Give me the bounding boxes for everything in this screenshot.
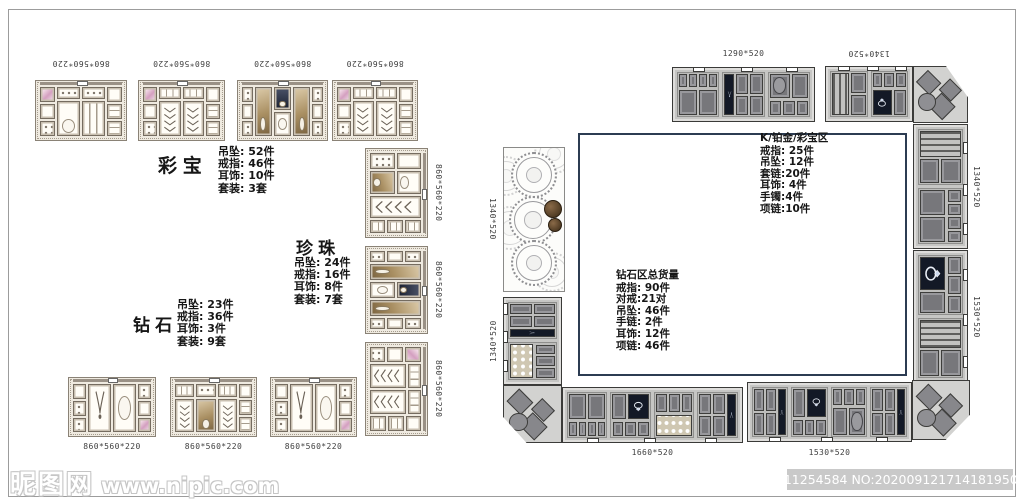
dimension-label: 860*560*220 <box>332 58 418 69</box>
display-cabinet-elevation <box>365 246 428 334</box>
plan-cabinet-run <box>825 66 913 122</box>
dimension-label: 860*560*220 <box>432 246 444 334</box>
display-cabinet-elevation <box>270 377 357 437</box>
dimension-label: 860*560*220 <box>35 58 127 69</box>
zone-inventory-k-area: K/铂金/彩宝区 戒指: 25件 吊坠: 12件 套链:20件 耳饰: 4件 手… <box>760 133 828 215</box>
dimension-label: 1530*520 <box>970 250 982 383</box>
inventory-list-zuanshi: 吊坠: 23件 戒指: 36件 耳饰: 3件 套装: 9套 <box>177 299 234 348</box>
jewel-decoration <box>548 218 562 232</box>
watermark-url: www.nipic.com <box>101 474 279 498</box>
plan-cabinet-run <box>562 387 743 443</box>
inventory-list-caibao: 吊坠: 52件 戒指: 46件 耳饰: 10件 套装: 3套 <box>218 146 275 195</box>
display-cabinet-elevation <box>68 377 156 437</box>
display-cabinet-elevation <box>35 80 127 141</box>
dimension-label: 1340*520 <box>488 297 500 385</box>
dimension-label: 860*560*220 <box>432 148 444 238</box>
image-id-stamp: ID:11254584 NO:20200912171418195000 <box>787 469 1013 490</box>
dimension-label: 1660*520 <box>562 447 743 458</box>
dimension-label: 1290*520 <box>672 48 815 59</box>
nipic-watermark: 昵图网 www.nipic.com <box>10 464 279 501</box>
zone-title: 钻石区总货量 <box>616 270 679 282</box>
inventory-line: 套装: 9套 <box>177 336 234 348</box>
dimension-label: 1340*520 <box>825 48 913 59</box>
inventory-line: 手镯:4件 <box>760 192 828 204</box>
inventory-line: 耳饰: 12件 <box>616 329 679 341</box>
dimension-label: 860*560*220 <box>270 441 357 452</box>
inventory-line: 套装: 3套 <box>218 183 275 195</box>
inventory-line: 项链:10件 <box>760 204 828 216</box>
inventory-line: 项链: 46件 <box>616 341 679 353</box>
dimension-label: 860*560*220 <box>237 58 328 69</box>
dimension-label: 860*560*220 <box>170 441 257 452</box>
display-cabinet-elevation <box>365 342 428 436</box>
inventory-line: 耳饰: 3件 <box>177 323 234 335</box>
inventory-line: 耳饰: 8件 <box>294 281 351 293</box>
display-cabinet-elevation <box>138 80 225 141</box>
plan-cabinet-run <box>747 382 912 442</box>
round-counter-strip <box>503 147 565 292</box>
display-cabinet-elevation <box>170 377 257 437</box>
dimension-label: 1340*520 <box>970 124 982 249</box>
store-layout-canvas: 860*560*220 860*560*220 860*560*220 860*… <box>0 0 1024 501</box>
plan-cabinet-run <box>913 124 968 249</box>
zone-inventory-diamond: 钻石区总货量 戒指: 90件 对戒:21对 吊坠: 46件 手链: 2件 耳饰:… <box>616 270 679 352</box>
display-cabinet-elevation <box>332 80 418 141</box>
inventory-line: 耳饰: 10件 <box>218 170 275 182</box>
display-cabinet-elevation <box>365 148 428 238</box>
watermark-site-name: 昵图网 <box>10 464 94 501</box>
round-counter <box>511 152 557 198</box>
plan-cabinet-run <box>503 297 562 385</box>
area-title-zuanshi: 钻石 <box>133 311 177 336</box>
dimension-label: 860*560*220 <box>138 58 225 69</box>
plan-cabinet-run <box>672 67 815 122</box>
plan-cabinet-run <box>913 250 968 383</box>
dimension-label: 1530*520 <box>747 447 912 458</box>
jewel-decoration <box>544 200 562 218</box>
inventory-list-zhenzhu: 吊坠: 24件 戒指: 16件 耳饰: 8件 套装: 7套 <box>294 257 351 306</box>
display-cabinet-elevation <box>237 80 328 141</box>
area-title-caibao: 彩宝 <box>158 151 207 178</box>
dimension-label: 860*560*220 <box>68 441 156 452</box>
round-counter <box>511 240 557 286</box>
dimension-label: 1340*520 <box>486 147 498 290</box>
zone-title: K/铂金/彩宝区 <box>760 133 828 145</box>
dimension-label: 860*560*220 <box>432 342 444 436</box>
inventory-line: 套装: 7套 <box>294 294 351 306</box>
